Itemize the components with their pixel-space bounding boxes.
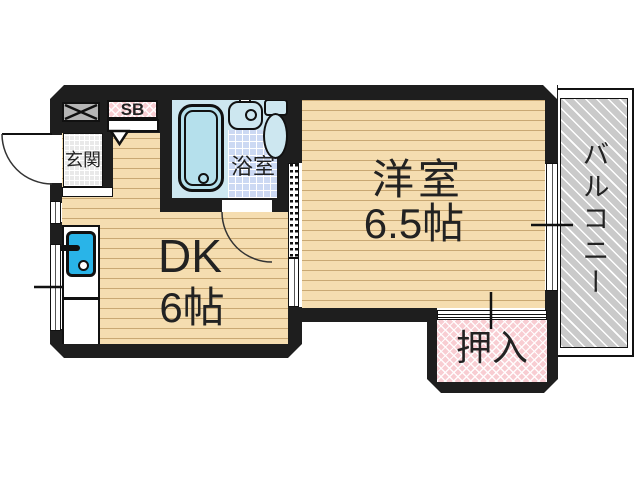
meter-box-icon <box>62 102 100 122</box>
balcony-label: バルコニー <box>576 140 610 300</box>
shoe-shelf <box>107 119 159 132</box>
bathroom-door-opening <box>222 200 272 213</box>
dk-western-sliding-door <box>288 163 299 258</box>
right-wall-top <box>545 85 558 164</box>
dk-western-door-panel <box>288 258 299 307</box>
left-wall-1 <box>50 85 62 135</box>
entrance-door-opening <box>50 135 62 183</box>
floorplan-canvas: バルコニー SB 玄関 浴室 <box>0 0 640 480</box>
toilet-bowl-icon <box>263 113 288 159</box>
kitchen-sink-icon <box>66 231 96 277</box>
entrance-door-swing-arc <box>2 134 52 184</box>
dk-size-label: 6帖 <box>110 287 274 329</box>
genkan-label: 玄関 <box>64 151 102 169</box>
washbasin-icon <box>228 101 263 130</box>
dk-label: DK <box>110 233 270 279</box>
left-wall-3 <box>50 222 62 246</box>
genkan-right-wall <box>103 133 113 189</box>
partition-wall-top <box>288 98 302 163</box>
kitchen-window <box>50 244 61 331</box>
western-room-bottom-wall <box>288 308 437 322</box>
bathtub-icon <box>178 104 224 192</box>
genkan-step <box>62 187 113 197</box>
closet-label: 押入 <box>437 330 547 366</box>
top-wall <box>50 85 557 100</box>
bathroom-label: 浴室 <box>228 156 278 178</box>
dk-bottom-wall <box>50 344 302 358</box>
closet-sliding-door <box>437 310 547 320</box>
entry-side-window <box>50 201 61 224</box>
shoe-box-label: SB <box>121 101 145 118</box>
left-wall-2 <box>50 183 62 203</box>
balcony-window <box>546 163 558 291</box>
bathroom-left-wall <box>160 98 172 212</box>
western-room-size-label: 6.5帖 <box>324 203 504 245</box>
shoe-box: SB <box>107 100 158 119</box>
western-room-label: 洋室 <box>328 159 508 201</box>
